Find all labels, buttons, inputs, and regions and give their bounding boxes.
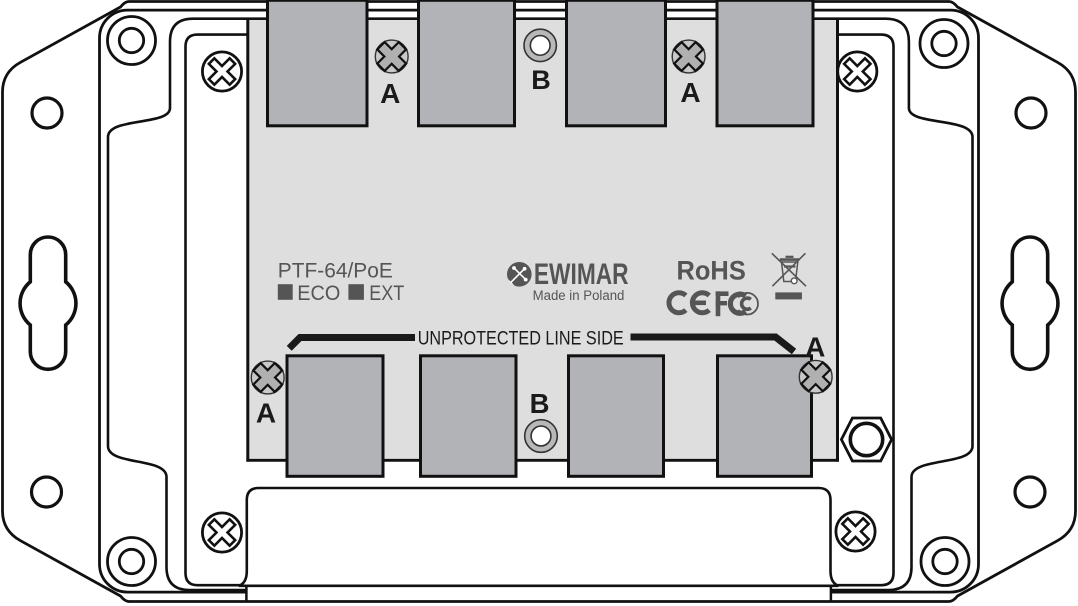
svg-text:PTF-64/PoE: PTF-64/PoE: [278, 260, 393, 283]
svg-text:EXT: EXT: [369, 281, 404, 305]
svg-text:A: A: [805, 332, 825, 363]
svg-text:RoHS: RoHS: [677, 255, 746, 285]
svg-text:A: A: [680, 77, 700, 108]
svg-text:A: A: [380, 78, 400, 109]
svg-text:B: B: [531, 65, 551, 95]
svg-text:ECO: ECO: [297, 281, 340, 305]
svg-text:B: B: [530, 388, 550, 419]
svg-text:A: A: [256, 397, 276, 428]
svg-text:UNPROTECTED LINE SIDE: UNPROTECTED LINE SIDE: [418, 329, 624, 350]
svg-text:Made in Poland: Made in Poland: [533, 288, 625, 303]
svg-text:EWIMAR: EWIMAR: [534, 258, 629, 291]
